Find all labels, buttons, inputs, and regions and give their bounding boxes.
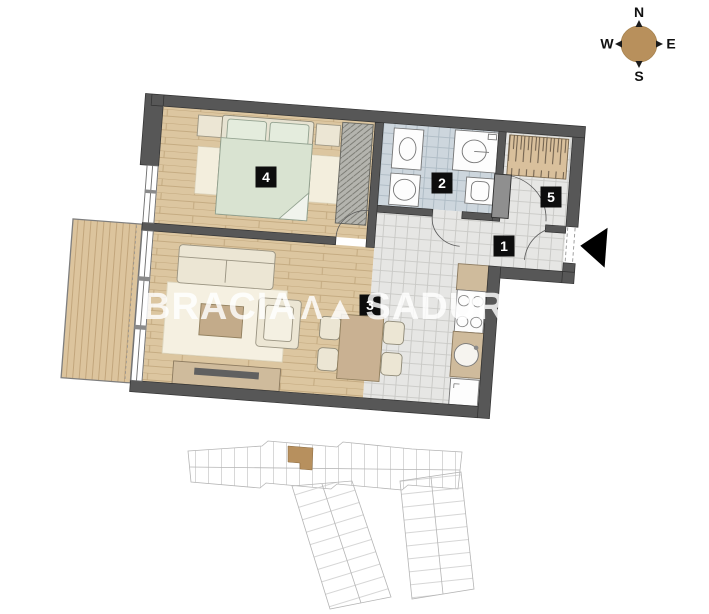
room-label-closet-number: 5 — [547, 189, 555, 205]
fridge — [449, 378, 480, 406]
site-plan-left-wing — [292, 481, 391, 609]
balcony-deck — [61, 219, 142, 383]
room-label-hall: 1 — [494, 236, 515, 257]
room-label-living: 3 — [360, 295, 381, 316]
compass-east-pointer-icon — [656, 41, 663, 48]
armchair-cushion — [263, 305, 293, 342]
compass-south-label: S — [634, 68, 643, 84]
kitchen-counter-top — [456, 264, 488, 292]
compass-north-label: N — [634, 4, 644, 20]
room-label-bath: 2 — [432, 173, 453, 194]
closet-wardrobe-hangers — [507, 135, 569, 179]
entrance-arrow-icon — [579, 226, 608, 268]
nightstand-left — [197, 115, 223, 138]
closet-furniture — [507, 135, 569, 179]
compass-west-label: W — [600, 36, 614, 52]
bathroom-sink-cabinet — [391, 128, 424, 170]
compass-south-pointer-icon — [636, 61, 643, 68]
shower-faucet — [488, 134, 497, 140]
entrance-threshold-dashed — [565, 227, 575, 262]
room-label-bedroom: 4 — [256, 167, 277, 188]
balcony — [61, 219, 142, 383]
closet-door-leaf — [492, 174, 512, 219]
floorplan-page: 1 2 3 4 5 N S W E — [0, 0, 709, 614]
nightstand-right — [315, 124, 341, 147]
room-label-living-number: 3 — [366, 297, 374, 313]
compass-circle — [621, 26, 657, 62]
compass-west-pointer-icon — [615, 41, 622, 48]
compass-east-label: E — [666, 36, 675, 52]
site-plan — [188, 441, 474, 609]
compass-north-pointer-icon — [636, 20, 643, 27]
floor-plan-canvas: 1 2 3 4 5 N S W E — [0, 0, 709, 614]
coffee-table — [199, 304, 244, 338]
room-label-bedroom-number: 4 — [262, 169, 270, 185]
room-label-bath-number: 2 — [438, 175, 446, 191]
compass-rose: N S W E — [600, 4, 675, 84]
dining-table — [337, 314, 384, 381]
bedroom-furniture — [191, 111, 373, 225]
room-label-closet: 5 — [541, 187, 562, 208]
apartment-plan — [60, 89, 615, 427]
room-label-hall-number: 1 — [500, 238, 508, 254]
stove — [454, 290, 486, 334]
